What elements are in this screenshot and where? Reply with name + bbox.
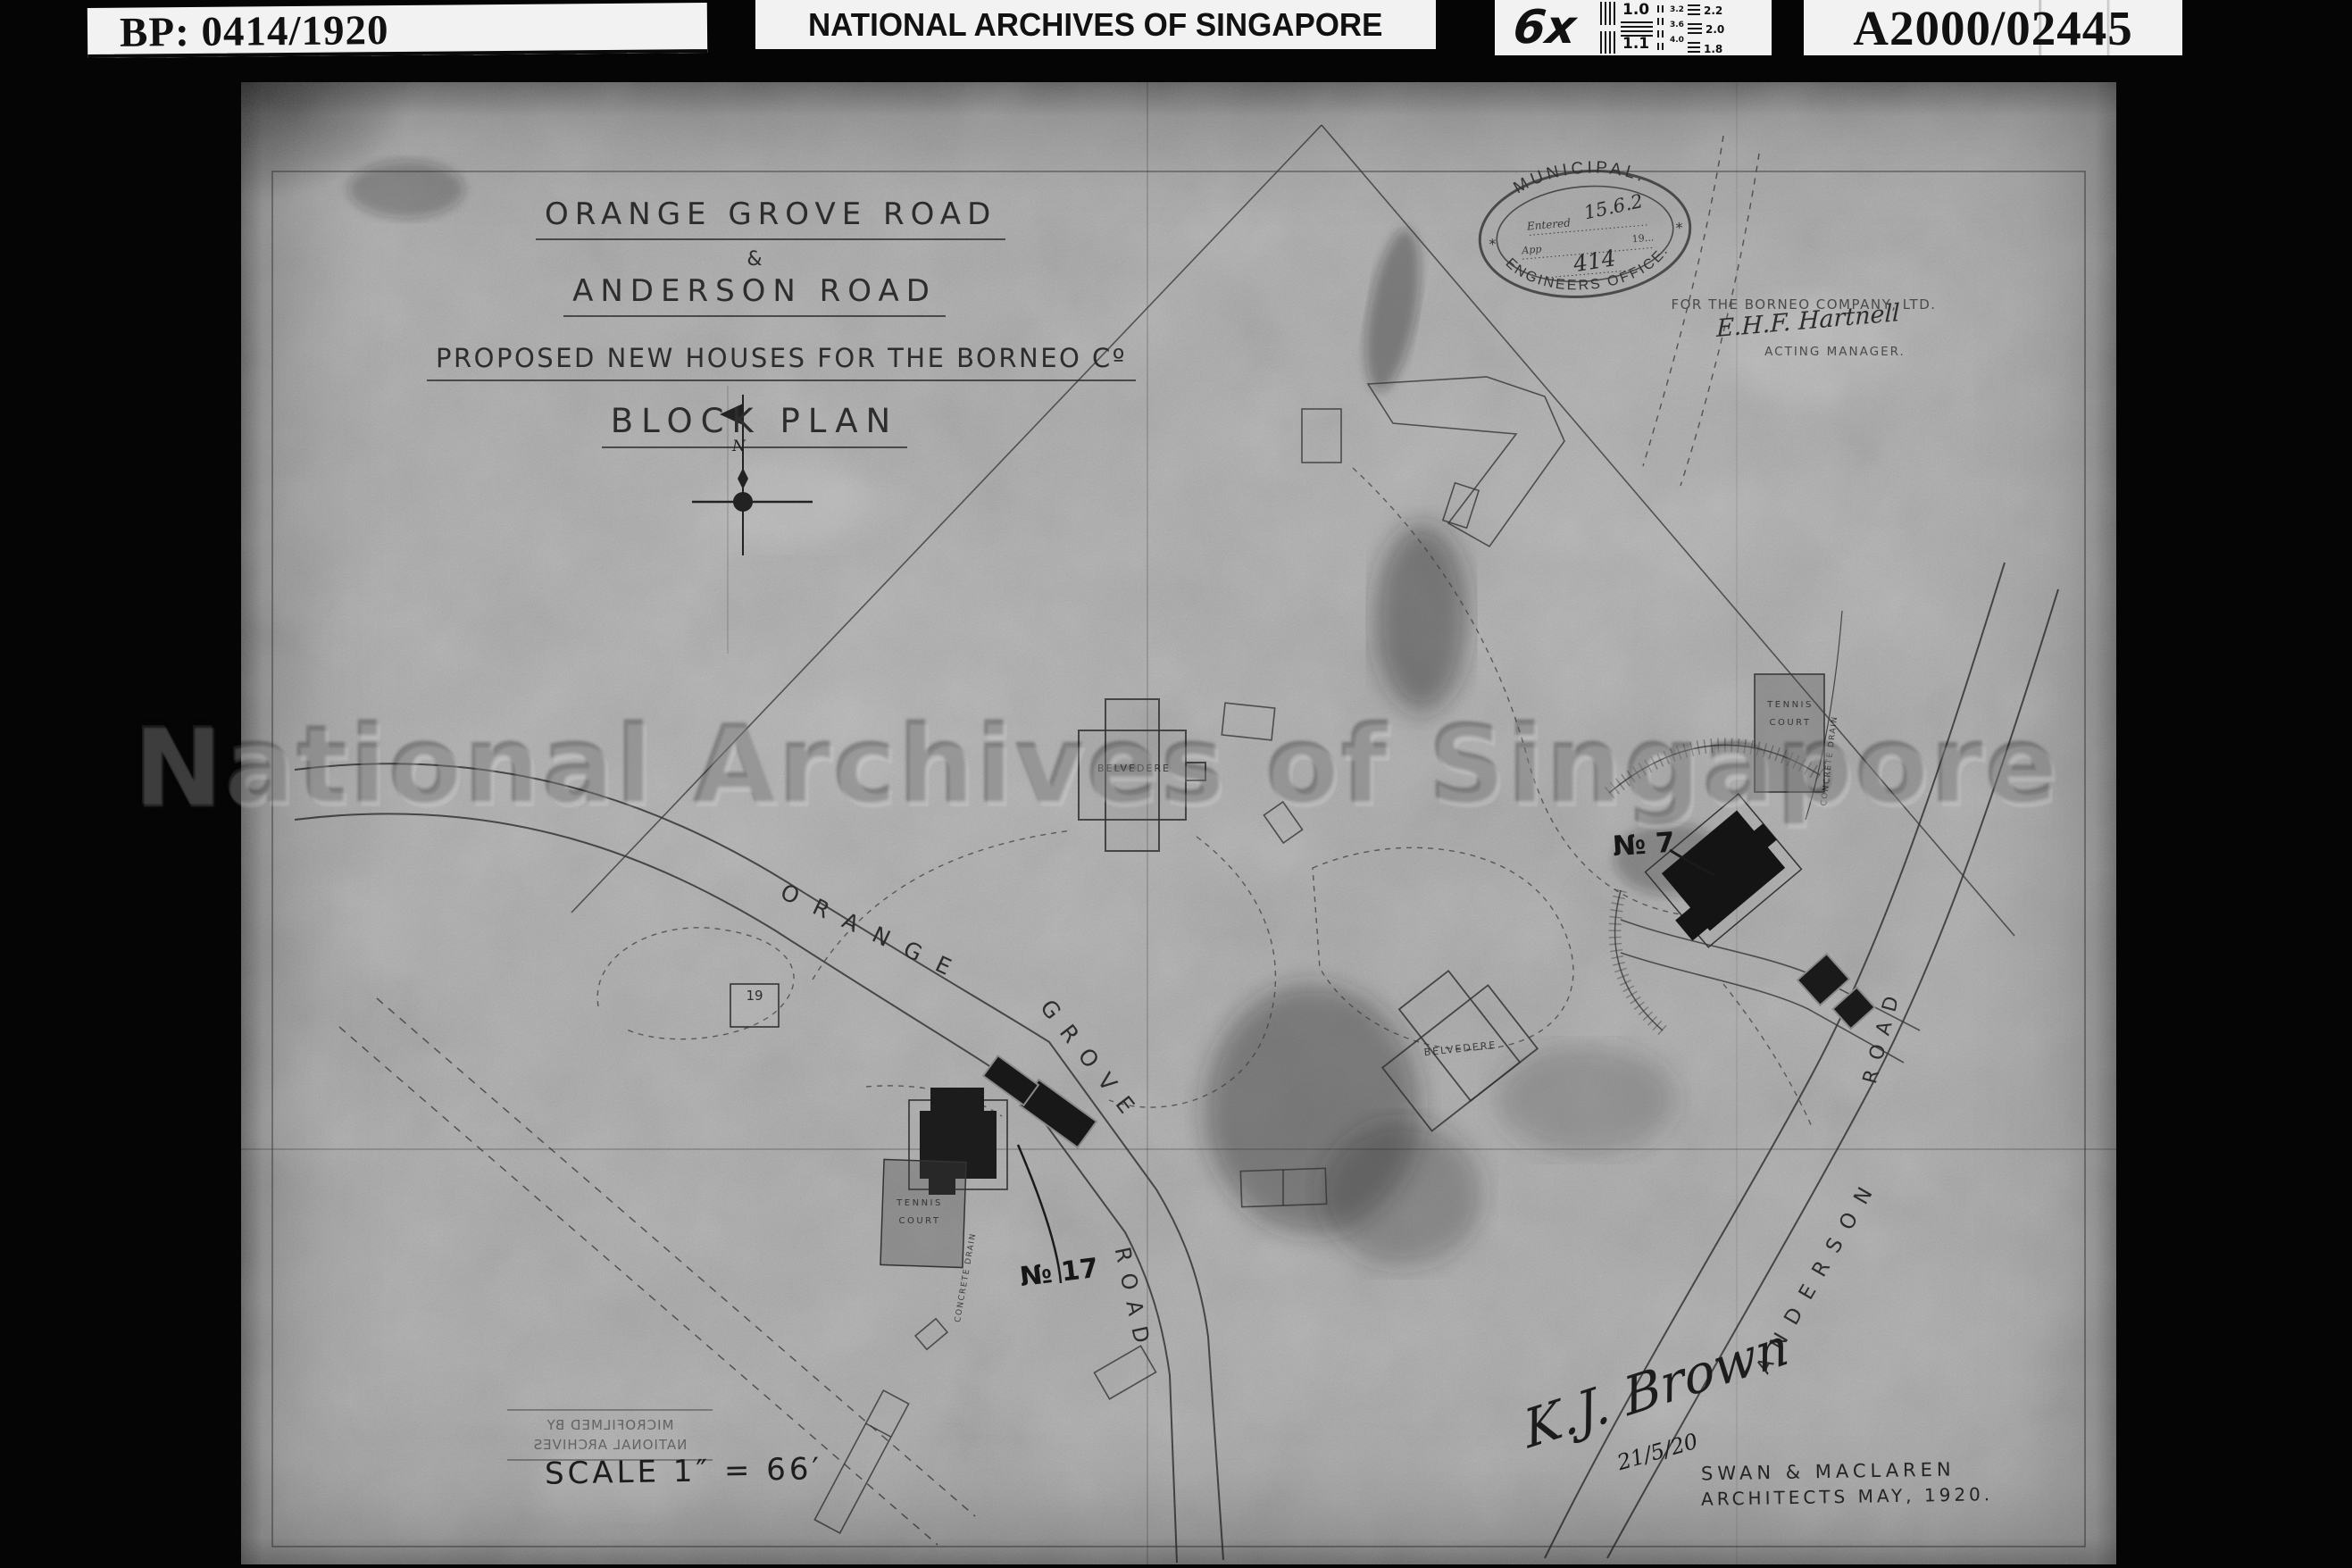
scale-note: SCALE 1″ = 66′ [545, 1451, 823, 1491]
magnification-value: 6x [1511, 1, 1579, 54]
test-label: 2.0 [1706, 23, 1724, 36]
title-line2: ANDERSON ROAD [536, 273, 973, 317]
house-no7-label: № 7 [1612, 827, 1676, 863]
test-bars-icon [1657, 5, 1665, 13]
block-plan-sheet: MUNICIPAL. ENGINEERS OFFICE. * * Entered… [241, 82, 2116, 1564]
test-bars-icon [1688, 22, 1702, 34]
microfilm-frame: BP: 0414/1920 NATIONAL ARCHIVES OF SINGA… [0, 0, 2352, 1568]
test-bars-icon [1600, 2, 1618, 25]
tennis-court-west-label: TENNIS COURT [882, 1195, 957, 1230]
reference-number-card: A2000/02445 [1804, 0, 2182, 55]
compass-n-label: N [732, 438, 746, 455]
test-bars-icon [1688, 42, 1700, 53]
title-line4: BLOCK PLAN [536, 402, 973, 448]
manager-role: ACTING MANAGER. [1750, 345, 1920, 359]
test-label: 1.0 [1622, 1, 1649, 19]
test-bars-icon [1657, 43, 1665, 50]
tennis-court-east [1755, 674, 1824, 792]
test-label: 1.1 [1622, 35, 1649, 53]
stamp-year-label: 19... [1631, 231, 1655, 245]
test-bars-icon [1600, 31, 1618, 54]
stamp-asterisk-icon: * [1675, 219, 1684, 237]
test-label: 3.6 [1670, 21, 1684, 29]
test-bars-icon [1657, 18, 1665, 25]
test-label: 3.2 [1670, 5, 1684, 14]
bp-number: BP: 0414/1920 [88, 6, 389, 57]
test-label: 1.8 [1704, 43, 1722, 55]
archive-name-card: NATIONAL ARCHIVES OF SINGAPORE [755, 0, 1436, 49]
test-label: 4.0 [1670, 36, 1684, 45]
test-bars-icon [1657, 30, 1665, 38]
architects-name: SWAN & MACLAREN [1701, 1459, 1956, 1485]
house-19-label: 19 [732, 988, 777, 1004]
test-label: 2.2 [1704, 4, 1722, 17]
test-bars-icon [1688, 4, 1700, 15]
bp-number-card: BP: 0414/1920 [88, 3, 707, 58]
magnification-card: 6x [1495, 0, 1595, 55]
reference-number: A2000/02445 [1853, 0, 2133, 55]
belvedere-west-label: BELVEDERE [1067, 763, 1201, 774]
tennis-court-east-label: TENNIS COURT [1757, 696, 1823, 732]
archive-name: NATIONAL ARCHIVES OF SINGAPORE [808, 6, 1382, 44]
title-line3: PROPOSED NEW HOUSES FOR THE BORNEO Cº [415, 343, 1147, 381]
stamp-asterisk-icon: * [1489, 236, 1497, 254]
title-line1: ORANGE GROVE ROAD [536, 196, 973, 240]
title-ampersand: & [536, 248, 973, 271]
resolution-test-target: 1.0 1.1 3.2 3.6 4.0 2.2 2.0 1.8 [1595, 0, 1772, 55]
stamp-approved-label: App [1521, 243, 1542, 256]
